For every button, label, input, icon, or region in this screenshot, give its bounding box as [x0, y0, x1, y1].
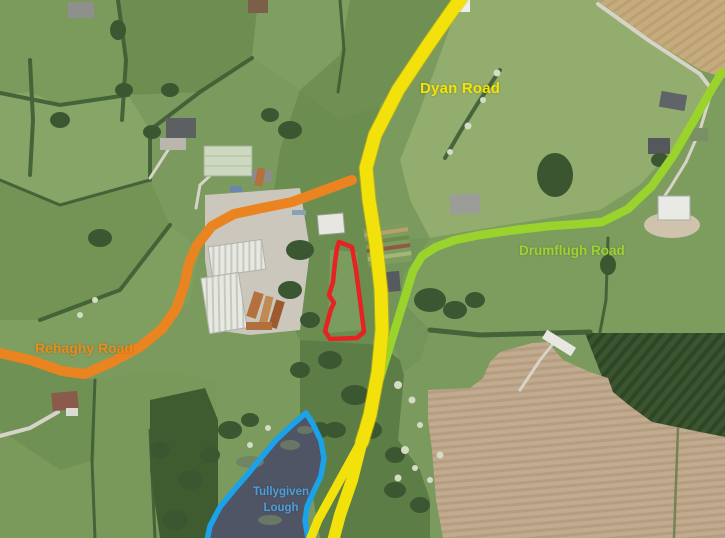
- house: [166, 118, 196, 138]
- house: [68, 2, 94, 18]
- greenhouse: [204, 146, 252, 176]
- annotated-aerial-map: Dyan Road Drumflugh Road Rehaghy Road Tu…: [0, 0, 725, 538]
- tullygiven-lough-label: Tullygiven Lough: [231, 484, 331, 516]
- tullygiven-lough-label-line1: Tullygiven: [231, 484, 331, 500]
- shed: [317, 213, 345, 235]
- house: [658, 196, 690, 220]
- aerial-basemap: [0, 0, 725, 538]
- tullygiven-lough-label-line2: Lough: [231, 500, 331, 516]
- house: [248, 0, 268, 13]
- rehaghy-road-label: Rehaghy Road: [35, 340, 133, 356]
- house: [449, 193, 480, 215]
- dyan-road-label: Dyan Road: [420, 80, 500, 97]
- warehouse-long: [201, 272, 247, 333]
- drumflugh-road-label: Drumflugh Road: [519, 243, 625, 258]
